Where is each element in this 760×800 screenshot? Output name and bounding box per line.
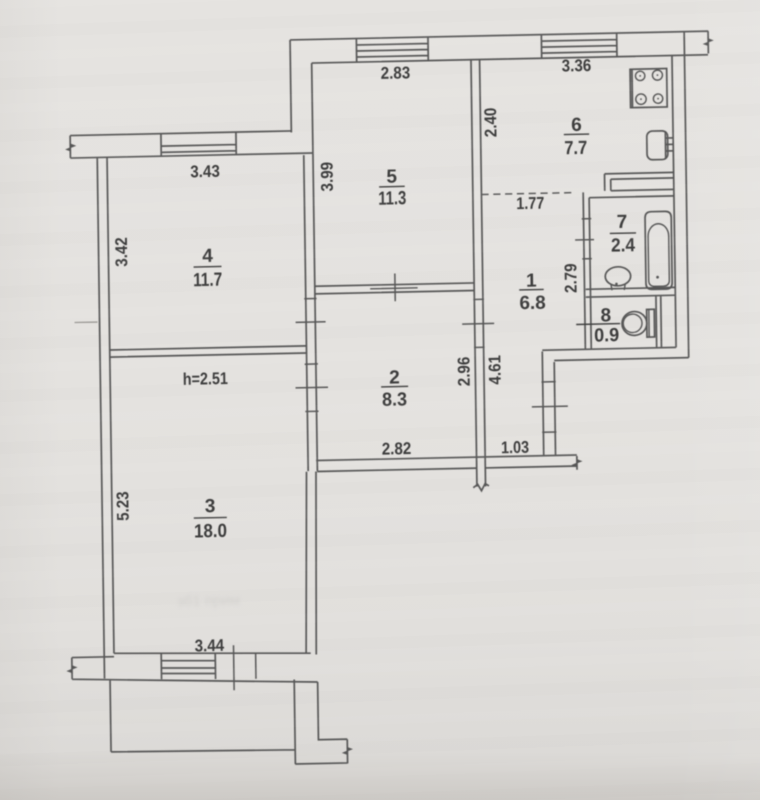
svg-text:2.4: 2.4 (611, 235, 636, 257)
svg-text:зб1 прим: зб1 прим (177, 592, 240, 610)
svg-text:4: 4 (202, 246, 213, 267)
svg-text:2: 2 (389, 367, 400, 388)
svg-text:3.42: 3.42 (112, 237, 131, 267)
svg-text:11.3: 11.3 (378, 188, 406, 210)
svg-text:2.82: 2.82 (382, 439, 412, 459)
svg-text:2.96: 2.96 (454, 357, 473, 387)
svg-text:1: 1 (526, 271, 537, 292)
svg-text:5.23: 5.23 (113, 491, 132, 521)
svg-text:0.9: 0.9 (594, 325, 619, 347)
svg-text:1.77: 1.77 (516, 194, 544, 214)
svg-text:7.7: 7.7 (564, 138, 587, 159)
svg-text:3: 3 (205, 496, 216, 517)
svg-text:8: 8 (600, 305, 611, 326)
svg-text:3.36: 3.36 (562, 56, 592, 76)
svg-text:5: 5 (386, 167, 397, 188)
svg-text:3.44: 3.44 (195, 636, 225, 656)
svg-text:8.3: 8.3 (382, 389, 407, 411)
svg-text:18.0: 18.0 (194, 521, 227, 543)
svg-text:3.43: 3.43 (190, 162, 220, 182)
svg-text:6.8: 6.8 (519, 293, 546, 315)
svg-text:11.7: 11.7 (193, 270, 222, 292)
svg-text:4.61: 4.61 (485, 355, 504, 385)
svg-text:2.79: 2.79 (561, 263, 580, 293)
svg-text:3.99: 3.99 (317, 162, 336, 192)
svg-text:1.03: 1.03 (501, 438, 529, 458)
svg-text:2.40: 2.40 (481, 107, 500, 137)
svg-text:h=2.51: h=2.51 (183, 369, 228, 389)
svg-text:7: 7 (617, 212, 628, 233)
svg-text:2.83: 2.83 (381, 63, 411, 83)
svg-text:6: 6 (571, 115, 582, 136)
